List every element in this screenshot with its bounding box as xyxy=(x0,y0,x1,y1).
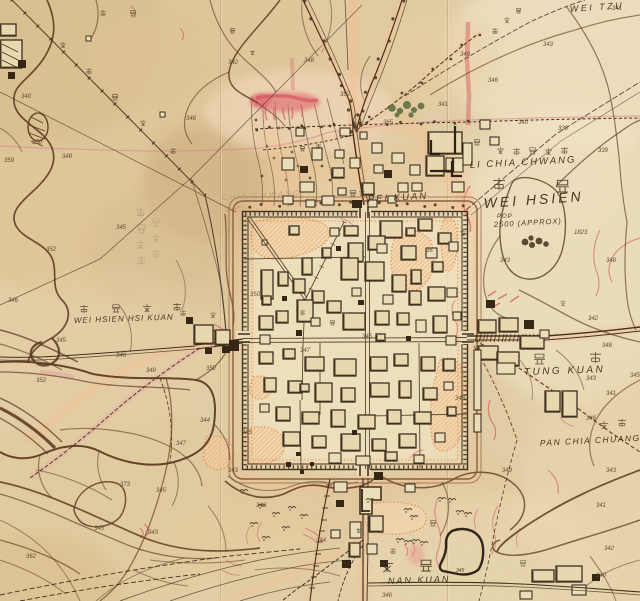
svg-text:348: 348 xyxy=(186,116,197,122)
svg-text:352: 352 xyxy=(206,366,217,372)
svg-text:346: 346 xyxy=(8,298,19,304)
svg-text:343: 343 xyxy=(148,530,159,536)
svg-text:341: 341 xyxy=(438,102,448,108)
svg-text:342: 342 xyxy=(604,546,615,552)
svg-text:343: 343 xyxy=(455,396,466,402)
svg-text:341: 341 xyxy=(612,6,622,12)
svg-text:342: 342 xyxy=(228,60,239,66)
svg-text:36: 36 xyxy=(426,248,433,254)
svg-text:352: 352 xyxy=(340,92,351,98)
svg-text:341: 341 xyxy=(596,503,606,509)
svg-text:345: 345 xyxy=(94,526,105,532)
svg-text:342: 342 xyxy=(588,316,599,322)
svg-text:365: 365 xyxy=(383,120,394,126)
svg-text:346: 346 xyxy=(586,416,597,422)
svg-text:345: 345 xyxy=(56,338,67,344)
svg-text:344: 344 xyxy=(200,418,211,424)
svg-text:344: 344 xyxy=(316,538,327,544)
svg-text:339: 339 xyxy=(598,148,609,154)
svg-text:345: 345 xyxy=(630,373,640,379)
svg-text:349: 349 xyxy=(460,52,471,58)
svg-text:343: 343 xyxy=(500,258,511,264)
svg-text:343: 343 xyxy=(586,376,597,382)
svg-text:342: 342 xyxy=(256,503,267,509)
svg-text:345: 345 xyxy=(116,225,127,231)
svg-text:349: 349 xyxy=(502,468,513,474)
svg-text:373: 373 xyxy=(120,482,131,488)
svg-text:343: 343 xyxy=(228,468,239,474)
svg-text:343: 343 xyxy=(543,42,554,48)
svg-text:338: 338 xyxy=(558,126,569,132)
svg-text:345: 345 xyxy=(156,488,167,494)
svg-text:348: 348 xyxy=(304,58,315,64)
svg-text:352: 352 xyxy=(46,247,57,253)
svg-text:362: 362 xyxy=(26,554,37,560)
svg-text:340: 340 xyxy=(596,573,607,579)
svg-text:345: 345 xyxy=(456,568,465,574)
svg-text:348: 348 xyxy=(602,343,613,349)
svg-text:350: 350 xyxy=(32,140,43,146)
svg-text:352: 352 xyxy=(36,378,47,384)
svg-text:348: 348 xyxy=(606,258,617,264)
svg-text:347: 347 xyxy=(176,441,187,447)
svg-text:345: 345 xyxy=(242,430,253,436)
svg-text:343: 343 xyxy=(606,468,617,474)
svg-text:340: 340 xyxy=(21,94,32,100)
svg-text:359: 359 xyxy=(4,158,15,164)
svg-text:341: 341 xyxy=(606,391,616,397)
svg-text:346: 346 xyxy=(488,78,499,84)
svg-text:345: 345 xyxy=(362,334,373,340)
svg-text:346: 346 xyxy=(382,593,393,599)
svg-text:340: 340 xyxy=(518,120,529,126)
svg-text:1823: 1823 xyxy=(574,230,588,236)
svg-text:348: 348 xyxy=(62,154,73,160)
svg-text:346: 346 xyxy=(116,353,127,359)
svg-text:348: 348 xyxy=(146,368,157,374)
svg-text:350: 350 xyxy=(250,292,261,298)
svg-text:347: 347 xyxy=(300,348,311,354)
